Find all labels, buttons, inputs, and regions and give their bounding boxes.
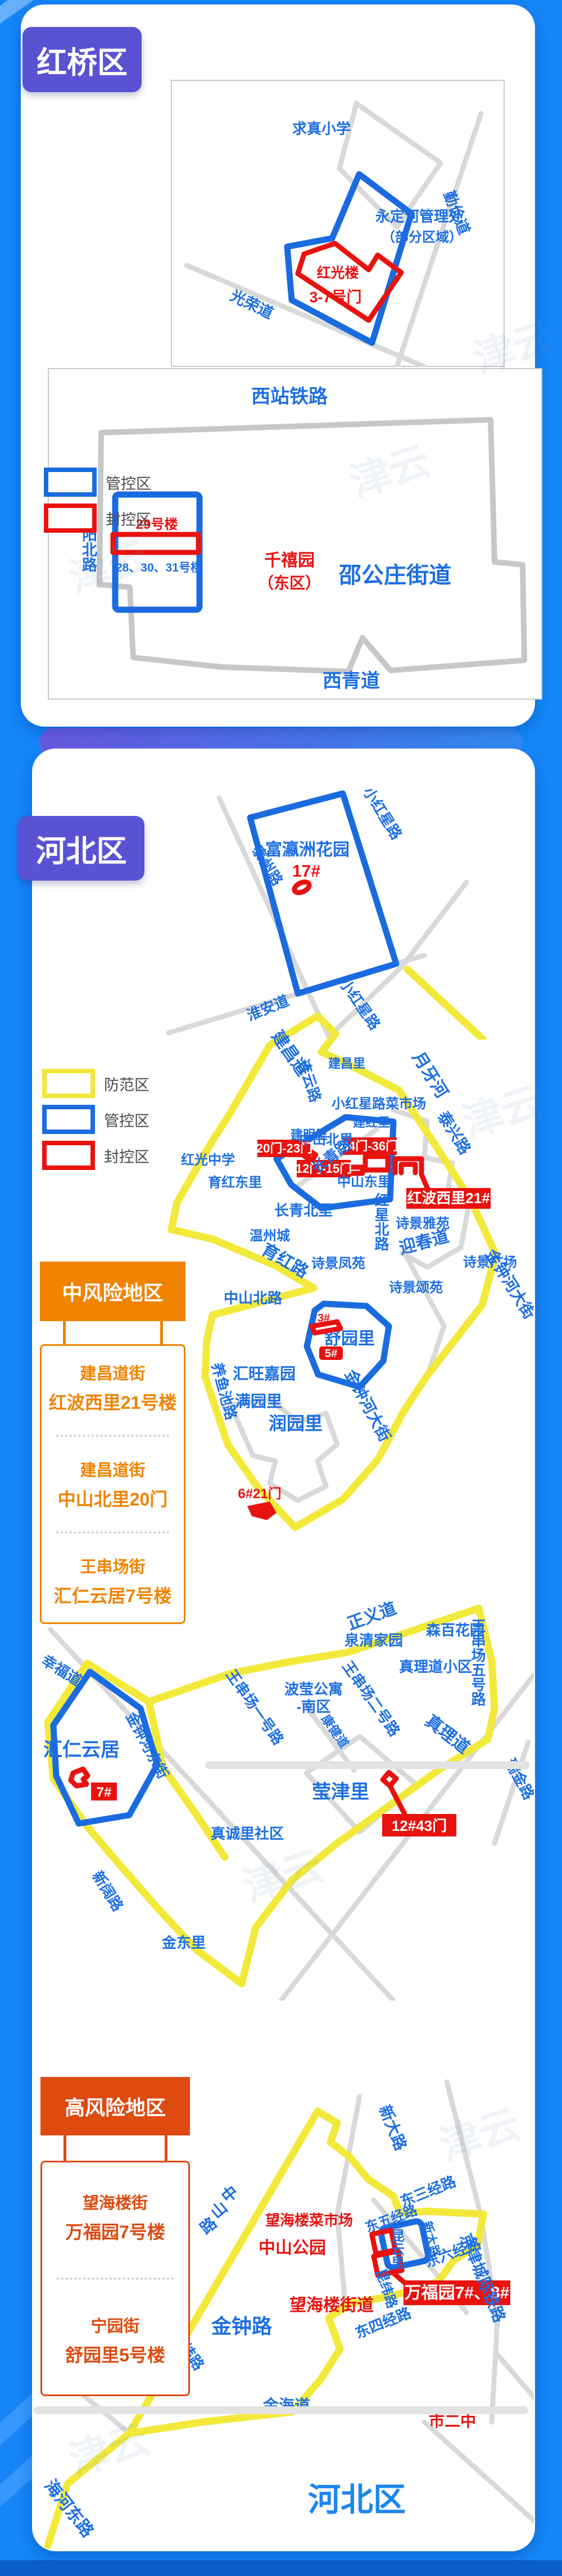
hongguanglou-label: 红光楼 xyxy=(316,265,359,281)
control-zone-label: 管控区 xyxy=(106,471,151,493)
high-risk-list: 望海楼街 万福园7号楼 宁园街 舒园里5号楼 xyxy=(40,2161,190,2396)
zhongshanbeili-label: 中山北里 xyxy=(299,1132,353,1148)
infographic-page: 津云 津云 津云 津云 津云 津云 津云 津云 红桥区 求真小学 永定河管理处 … xyxy=(0,0,562,2576)
list-separator xyxy=(57,2278,174,2280)
xiqing-road-label: 西青道 xyxy=(323,670,380,692)
hongqiao-district-badge: 红桥区 xyxy=(22,27,142,92)
prevention-zone-swatch xyxy=(42,1069,95,1098)
changqingbeili-label: 长青北里 xyxy=(274,1202,333,1219)
map-divider-2 xyxy=(34,2406,528,2414)
jinzhong-road-label: 金钟路 xyxy=(211,2315,273,2338)
gate1243-label: 12#43门 xyxy=(392,1817,447,1834)
medium-risk-connector-left xyxy=(63,1321,66,1345)
hongqiao-district-label: 红桥区 xyxy=(37,38,128,82)
legend-row-sealed: 封控区 xyxy=(42,1141,149,1170)
bottom-right-road-1 xyxy=(424,2422,534,2523)
hongboxili-label: 红波西里21# xyxy=(407,1190,490,1207)
map-divider-1 xyxy=(205,1761,530,1769)
bottom-right-road-2 xyxy=(497,2355,534,2433)
sealed-bldg7-shape xyxy=(71,1769,88,1786)
boying-label-2: -南区 xyxy=(297,1698,331,1715)
high-risk-item: 宁园街 舒园里5号楼 xyxy=(42,2313,188,2367)
xinda-road-label-1: 新大路 xyxy=(376,2103,410,2153)
building-name: 舒园里5号楼 xyxy=(42,2341,188,2367)
sealed-bldg17-mark xyxy=(293,880,311,895)
street-name: 望海楼街 xyxy=(42,2190,188,2214)
gate-shape-hongboxili xyxy=(395,1159,422,1173)
b3-label: 3# xyxy=(318,1312,330,1325)
senbaihuayuan-label: 森百花园 xyxy=(426,1622,484,1639)
yongdinghe-label-2: （部分区域） xyxy=(382,229,463,245)
hebei-legend: 防范区 管控区 封控区 xyxy=(42,1069,149,1177)
zhenli-road-label: 真理道 xyxy=(422,1712,473,1757)
hongqiao-map-hongguanglou: 求真小学 永定河管理处 （部分区域） 红光楼 3-7号门 光荣道 勤俭道 xyxy=(171,80,505,367)
gate621-label: 6#21门 xyxy=(238,1486,281,1502)
xiaohongxing-road-gray xyxy=(402,882,466,967)
prevention-jinhai-road-edge xyxy=(129,2412,292,2433)
control-zone-swatch xyxy=(42,1105,95,1134)
runyuanli-label: 润园里 xyxy=(269,1413,323,1434)
yuhongdongli-label: 育红东里 xyxy=(208,1174,262,1190)
high-risk-title: 高风险地区 xyxy=(65,2092,166,2121)
zhongshanbei-road-label: 中山北路 xyxy=(224,1290,283,1307)
market-label: 小红星路菜市场 xyxy=(332,1096,426,1112)
zhenlidao-xiaoqu-label: 真理道小区 xyxy=(399,1658,472,1675)
list-separator xyxy=(56,1435,169,1437)
wangchuanchang1-road-label: 王串场一号路 xyxy=(223,1666,287,1748)
manyuanli-label: 满园里 xyxy=(235,1393,282,1410)
medium-risk-item: 建昌道街 红波西里21号楼 xyxy=(42,1360,184,1414)
wanghailou-jiedao-label: 望海楼街道 xyxy=(289,2296,374,2315)
wangchuanchang2-road-label: 王串场二号路 xyxy=(339,1658,404,1740)
quanqingjiayuan-label: 泉清家园 xyxy=(345,1632,403,1649)
b7-label: 7# xyxy=(97,1785,112,1800)
gate-shape-3436 xyxy=(365,1157,388,1170)
high-risk-connector-left xyxy=(64,2135,66,2161)
gates-label: 3-7号门 xyxy=(309,289,361,306)
hongxing-road-label: 红星北路 xyxy=(373,1192,389,1251)
control-zone-swatch xyxy=(44,468,97,497)
high-risk-connector-right xyxy=(165,2135,167,2161)
deco-bottom-strip xyxy=(0,2560,562,2576)
hebei-map-fuyingzhou: 富瀛洲花园 17# 泰州路 小红星路 淮安道 小红星路 xyxy=(160,781,486,1040)
street-name: 王串场街 xyxy=(42,1554,184,1577)
sealed-zone-label: 封控区 xyxy=(104,1145,149,1167)
hebei-district-label: 河北区 xyxy=(36,826,127,870)
legend-row-sealed: 封控区 xyxy=(44,504,151,533)
school-label: 求真小学 xyxy=(292,120,351,137)
huiwangjiayuan-label: 汇旺嘉园 xyxy=(233,1365,296,1382)
building-name: 红波西里21号楼 xyxy=(42,1389,184,1414)
hongguang-school-label: 红光中学 xyxy=(181,1152,235,1168)
leader-line-hongboxili xyxy=(422,1174,428,1190)
prevention-zone-label: 防范区 xyxy=(104,1073,149,1095)
legend-row-control: 管控区 xyxy=(44,468,151,497)
xiaohongxing-road-label-top: 小红星路 xyxy=(360,784,405,843)
zhongshandongli-label: 中山东里 xyxy=(337,1174,391,1190)
building-name: 中山北里20门 xyxy=(42,1485,184,1511)
hongqiao-legend: 管控区 封控区 xyxy=(44,468,151,539)
medium-risk-title: 中风险地区 xyxy=(62,1277,163,1306)
shierzhong-label: 市二中 xyxy=(429,2412,476,2430)
boying-label-1: 波莹公寓 xyxy=(284,1681,343,1698)
medium-risk-list: 建昌道街 红波西里21号楼 建昌道街 中山北里20门 王串场街 汇仁云居7号楼 xyxy=(40,1344,185,1624)
high-risk-item: 望海楼街 万福园7号楼 xyxy=(42,2190,188,2244)
medium-risk-connector-right xyxy=(160,1321,163,1345)
lianyun-road-label: 连云路 xyxy=(294,1057,324,1104)
building-name: 汇仁云居7号楼 xyxy=(42,1582,184,1608)
jindongli-label: 金东里 xyxy=(161,1934,206,1951)
caishichang-label: 望海楼菜市场 xyxy=(265,2212,353,2229)
legend-row-control: 管控区 xyxy=(42,1105,149,1134)
yuhong-road-label: 育红路 xyxy=(259,1240,312,1282)
legend-row-prevention: 防范区 xyxy=(42,1069,149,1098)
yingchun-road-label: 迎春道 xyxy=(397,1227,451,1258)
high-risk-header: 高风险地区 xyxy=(40,2077,190,2135)
kunyunli-label: 昆云里 xyxy=(389,2229,405,2269)
fuyingzhou-label: 富瀛洲花园 xyxy=(265,840,350,859)
zhenchengli-label: 真诚里社区 xyxy=(211,1825,284,1842)
b5-label: 5# xyxy=(325,1348,337,1360)
building-name: 万福园7号楼 xyxy=(42,2218,188,2244)
xinkuo-road-label: 新阔路 xyxy=(89,1868,126,1915)
medium-risk-header: 中风险地区 xyxy=(40,1262,185,1321)
yingjinli-label: 莹津里 xyxy=(312,1781,369,1803)
yueyahe-label: 月牙河 xyxy=(409,1049,451,1101)
control-zone-outline xyxy=(250,793,396,994)
street-name: 建昌道街 xyxy=(42,1360,184,1384)
railway-label: 西站铁路 xyxy=(251,386,328,407)
hebei-district-big-label: 河北区 xyxy=(308,2482,406,2518)
hebei-map-huirenyunju: 7# 幸福道 金钟河东街 汇仁云居 新阔路 真诚里社区 金东里 正义道 王串场五… xyxy=(34,1602,534,2001)
street-name: 宁园街 xyxy=(42,2313,188,2337)
jianhongli-label: 建红里 xyxy=(353,1115,390,1130)
qianxiyuan-label-1: 千禧园 xyxy=(264,551,315,570)
inner-road-1 xyxy=(337,2096,360,2310)
dong3-road-label: 东三经路 xyxy=(398,2173,459,2210)
sealed-zone-swatch xyxy=(42,1141,95,1170)
shaogongzhuang-label: 邵公庄街道 xyxy=(338,563,451,588)
medium-risk-item: 王串场街 汇仁云居7号楼 xyxy=(42,1554,184,1608)
huirenyunju-label: 汇仁云居 xyxy=(43,1739,120,1761)
zhongshan-park-label: 中山公园 xyxy=(259,2239,326,2257)
sealed-zone-swatch xyxy=(44,504,97,533)
list-separator xyxy=(56,1531,169,1534)
bldg283031-label: 28、30、31号楼 xyxy=(116,561,202,574)
control-zone-label: 管控区 xyxy=(104,1109,149,1131)
medium-risk-item: 建昌道街 中山北里20门 xyxy=(42,1457,184,1511)
sealed-zone-label: 封控区 xyxy=(106,507,151,529)
street-name: 建昌道街 xyxy=(42,1457,184,1481)
hebei-district-badge: 河北区 xyxy=(18,816,144,881)
zhengyi-road-label: 正义道 xyxy=(345,1602,399,1634)
jianchangli-label: 建昌里 xyxy=(328,1056,365,1071)
qianxiyuan-label-2: （东区） xyxy=(258,574,321,592)
b17-label: 17# xyxy=(292,862,320,881)
shijingsongyuan-label: 诗景颂苑 xyxy=(389,1280,443,1295)
shijingfengyuan-label: 诗景凤苑 xyxy=(311,1256,365,1271)
